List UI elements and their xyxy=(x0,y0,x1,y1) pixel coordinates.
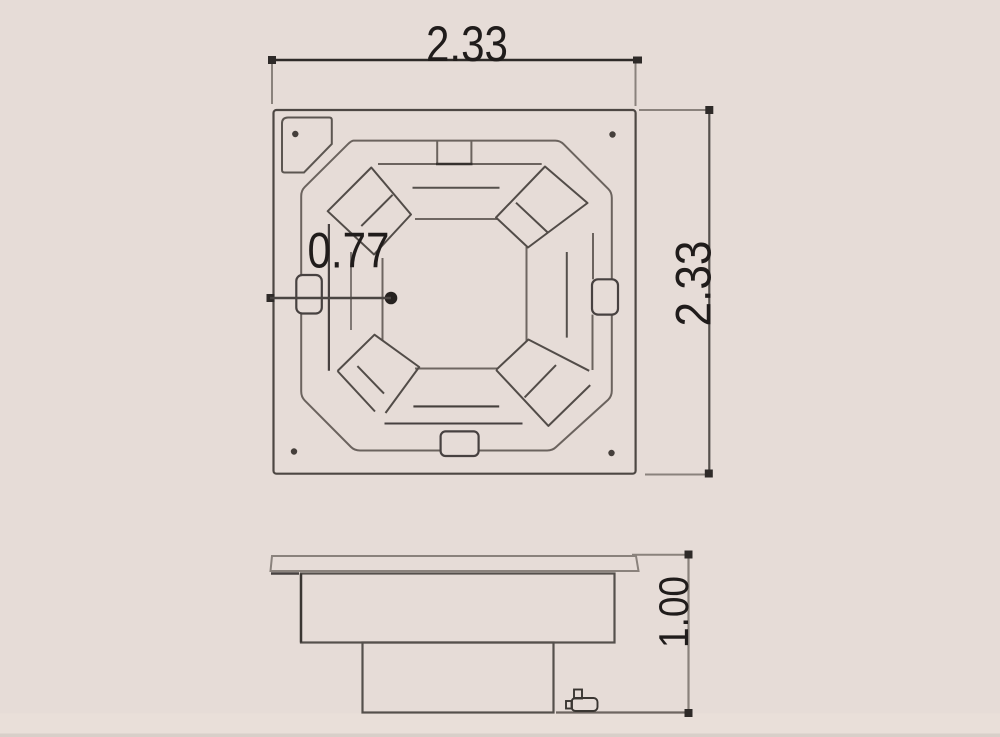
svg-text:2.33: 2.33 xyxy=(426,16,508,72)
svg-text:2.33: 2.33 xyxy=(666,241,722,327)
svg-text:1.00: 1.00 xyxy=(650,576,697,648)
svg-text:0.77: 0.77 xyxy=(308,223,390,279)
